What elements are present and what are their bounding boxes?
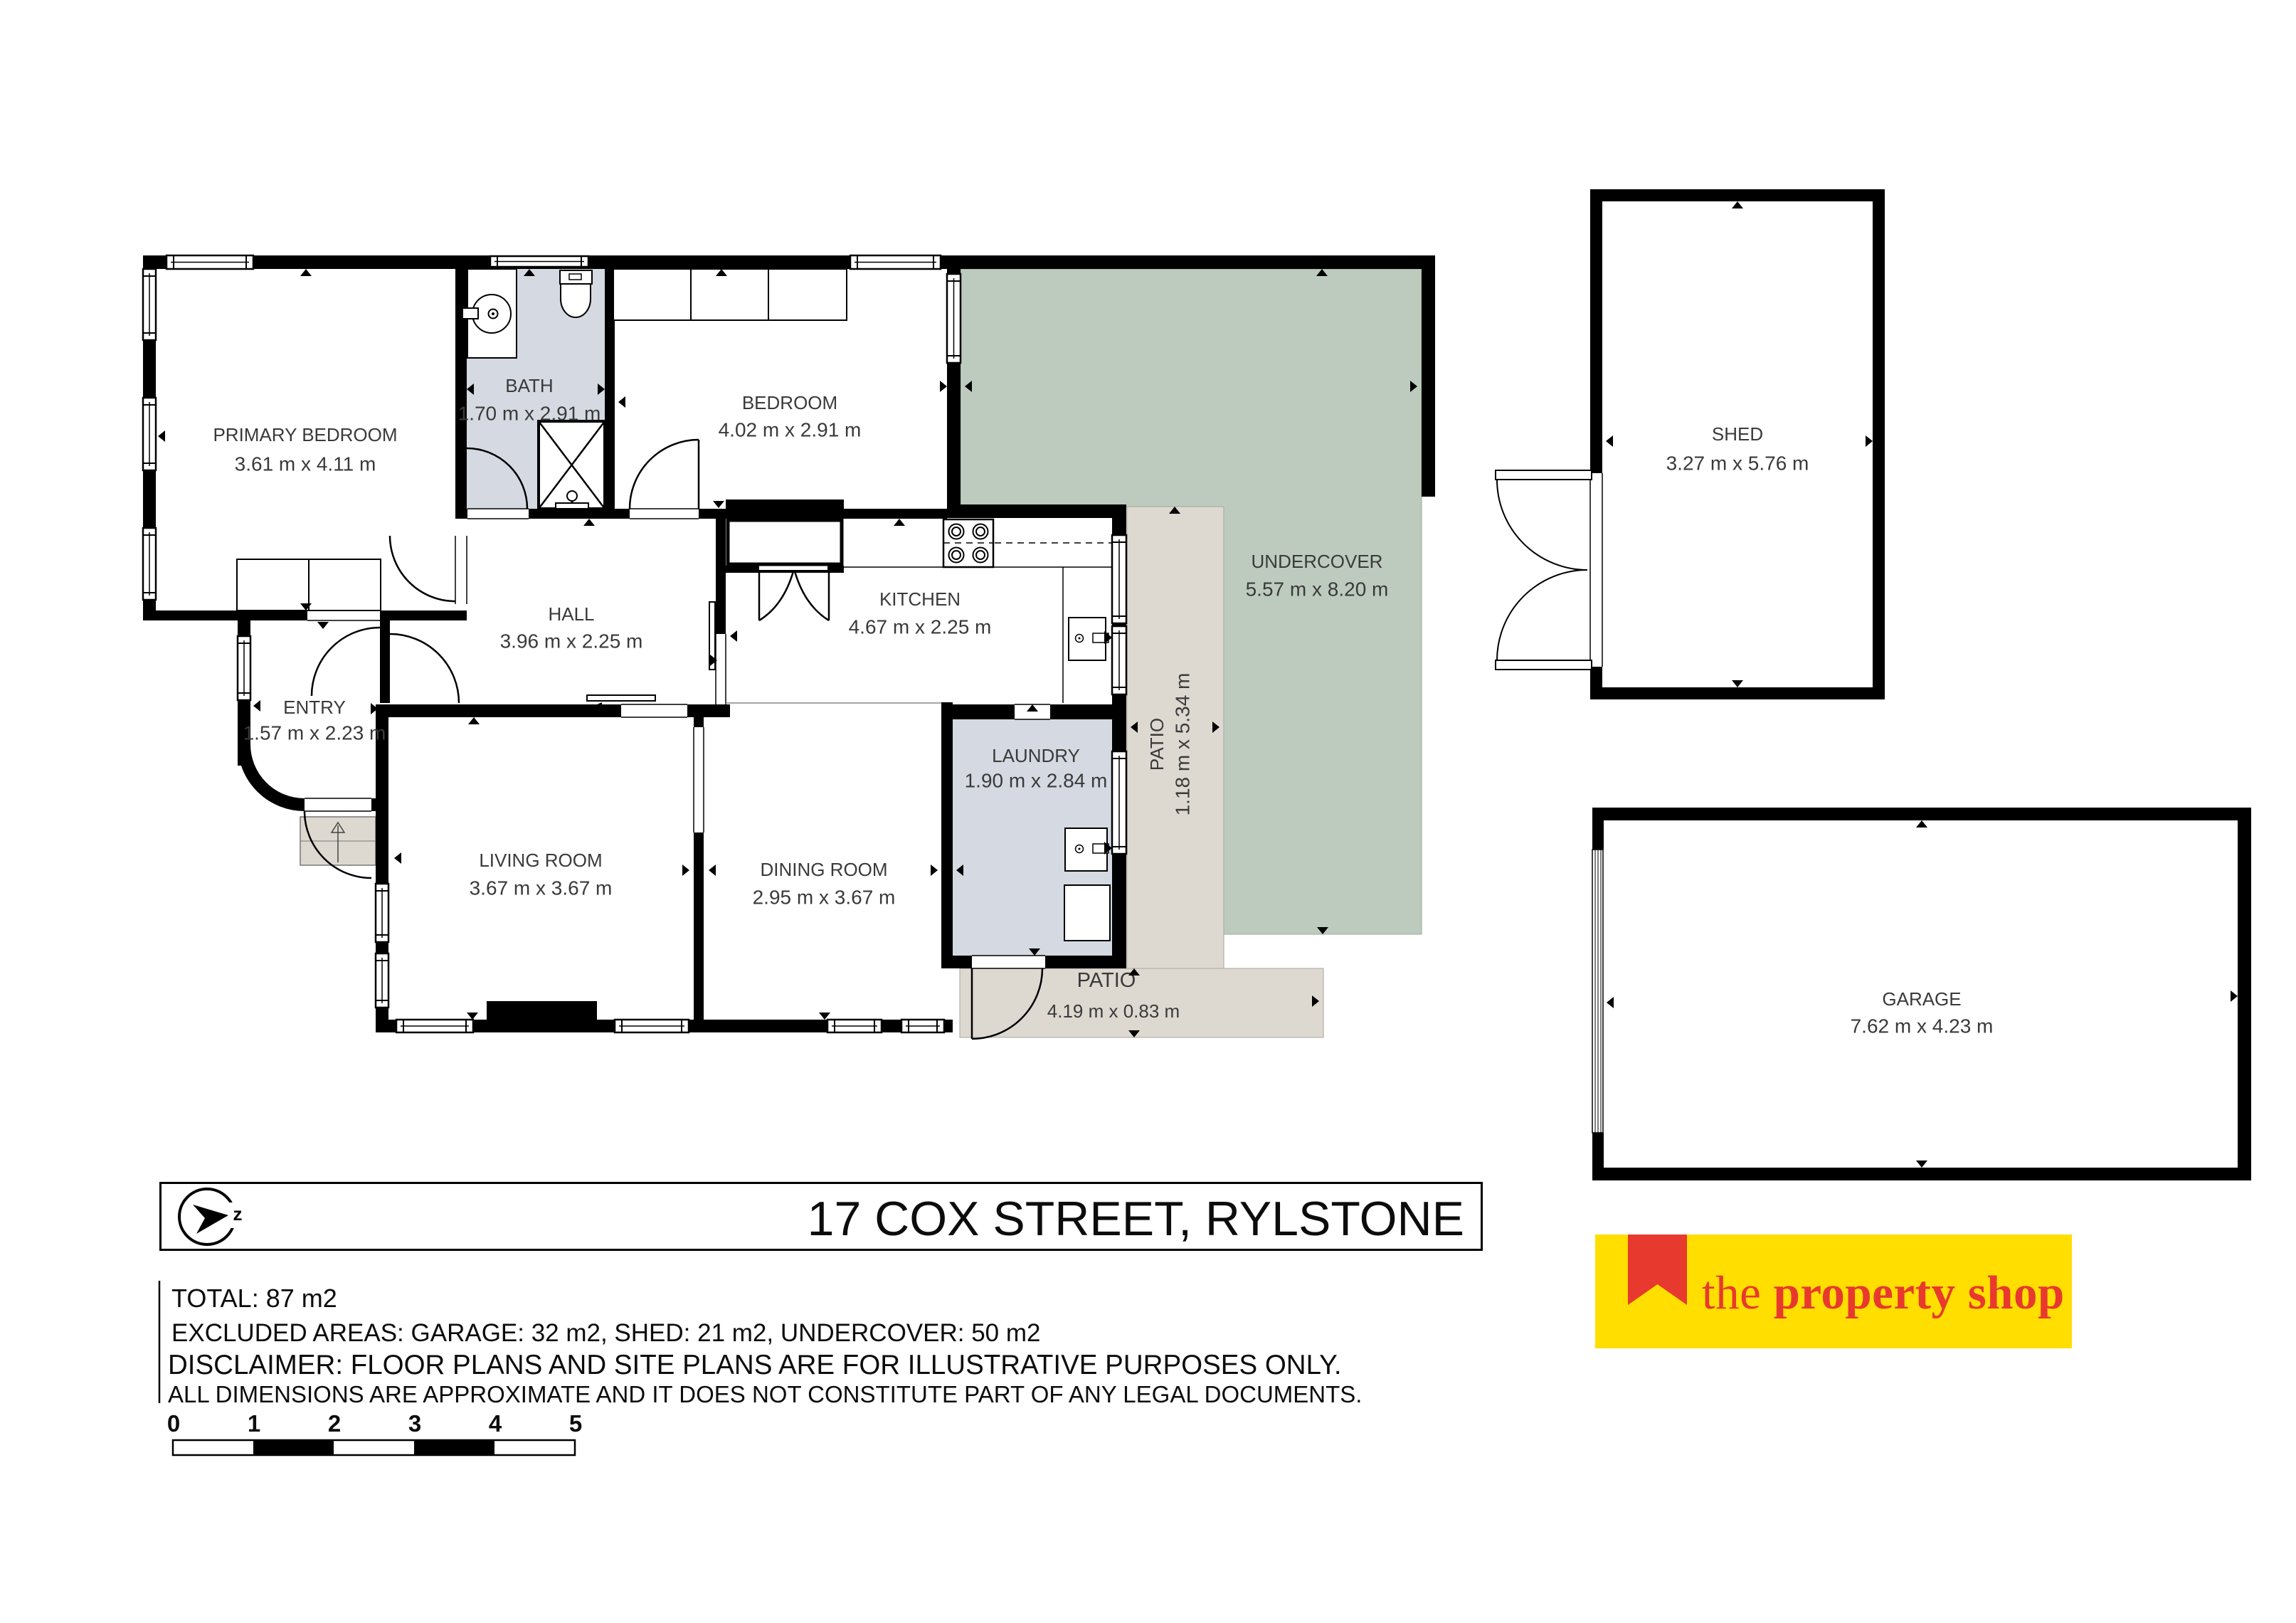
svg-text:4: 4 bbox=[489, 1410, 502, 1437]
svg-text:UNDERCOVER: UNDERCOVER bbox=[1252, 551, 1383, 572]
svg-text:4.02 m x 2.91 m: 4.02 m x 2.91 m bbox=[719, 419, 862, 441]
svg-text:1.70 m x 2.91 m: 1.70 m x 2.91 m bbox=[458, 403, 601, 425]
svg-text:BATH: BATH bbox=[505, 375, 553, 396]
svg-text:17 COX STREET, RYLSTONE: 17 COX STREET, RYLSTONE bbox=[808, 1192, 1464, 1246]
svg-text:PRIMARY BEDROOM: PRIMARY BEDROOM bbox=[213, 424, 397, 445]
svg-text:ENTRY: ENTRY bbox=[283, 697, 346, 718]
svg-text:3.61 m x 4.11 m: 3.61 m x 4.11 m bbox=[235, 453, 376, 475]
svg-text:EXCLUDED AREAS: GARAGE: 32 m2,: EXCLUDED AREAS: GARAGE: 32 m2, SHED: 21 … bbox=[171, 1319, 1040, 1347]
svg-text:BEDROOM: BEDROOM bbox=[742, 392, 837, 413]
svg-text:3: 3 bbox=[408, 1410, 421, 1437]
svg-text:5: 5 bbox=[569, 1410, 582, 1437]
svg-text:HALL: HALL bbox=[548, 603, 594, 625]
svg-text:4.19 m x 0.83 m: 4.19 m x 0.83 m bbox=[1047, 1000, 1180, 1022]
svg-text:5.57 m x 8.20 m: 5.57 m x 8.20 m bbox=[1246, 578, 1389, 601]
svg-text:1.18 m x 5.34 m: 1.18 m x 5.34 m bbox=[1172, 673, 1194, 816]
svg-text:2: 2 bbox=[328, 1410, 341, 1437]
svg-text:DISCLAIMER: FLOOR PLANS AND SI: DISCLAIMER: FLOOR PLANS AND SITE PLANS A… bbox=[168, 1350, 1342, 1380]
svg-text:3.67 m x 3.67 m: 3.67 m x 3.67 m bbox=[470, 877, 613, 899]
svg-text:2.95 m x 3.67 m: 2.95 m x 3.67 m bbox=[753, 887, 896, 909]
svg-text:1: 1 bbox=[248, 1410, 260, 1437]
svg-text:3.96 m x 2.25 m: 3.96 m x 2.25 m bbox=[500, 630, 643, 652]
svg-text:GARAGE: GARAGE bbox=[1882, 988, 1961, 1010]
svg-text:PATIO: PATIO bbox=[1077, 969, 1136, 992]
svg-text:KITCHEN: KITCHEN bbox=[879, 588, 961, 610]
svg-text:ALL DIMENSIONS ARE APPROXIMATE: ALL DIMENSIONS ARE APPROXIMATE AND IT DO… bbox=[168, 1381, 1362, 1407]
svg-text:DINING ROOM: DINING ROOM bbox=[760, 859, 887, 880]
svg-text:LIVING ROOM: LIVING ROOM bbox=[479, 850, 602, 871]
svg-text:7.62 m x 4.23 m: 7.62 m x 4.23 m bbox=[1851, 1015, 1994, 1037]
svg-text:1.90 m x 2.84 m: 1.90 m x 2.84 m bbox=[965, 770, 1108, 792]
svg-text:the property shop: the property shop bbox=[1702, 1267, 2065, 1319]
svg-text:0: 0 bbox=[167, 1410, 180, 1437]
svg-text:PATIO: PATIO bbox=[1146, 718, 1168, 771]
svg-text:SHED: SHED bbox=[1712, 423, 1763, 445]
svg-text:z: z bbox=[233, 1203, 243, 1225]
svg-text:TOTAL: 87 m2: TOTAL: 87 m2 bbox=[171, 1284, 337, 1313]
svg-text:1.57 m x 2.23 m: 1.57 m x 2.23 m bbox=[243, 722, 386, 744]
svg-text:4.67 m x 2.25 m: 4.67 m x 2.25 m bbox=[849, 616, 992, 638]
svg-text:3.27 m x 5.76 m: 3.27 m x 5.76 m bbox=[1666, 453, 1809, 475]
svg-text:LAUNDRY: LAUNDRY bbox=[992, 745, 1080, 766]
